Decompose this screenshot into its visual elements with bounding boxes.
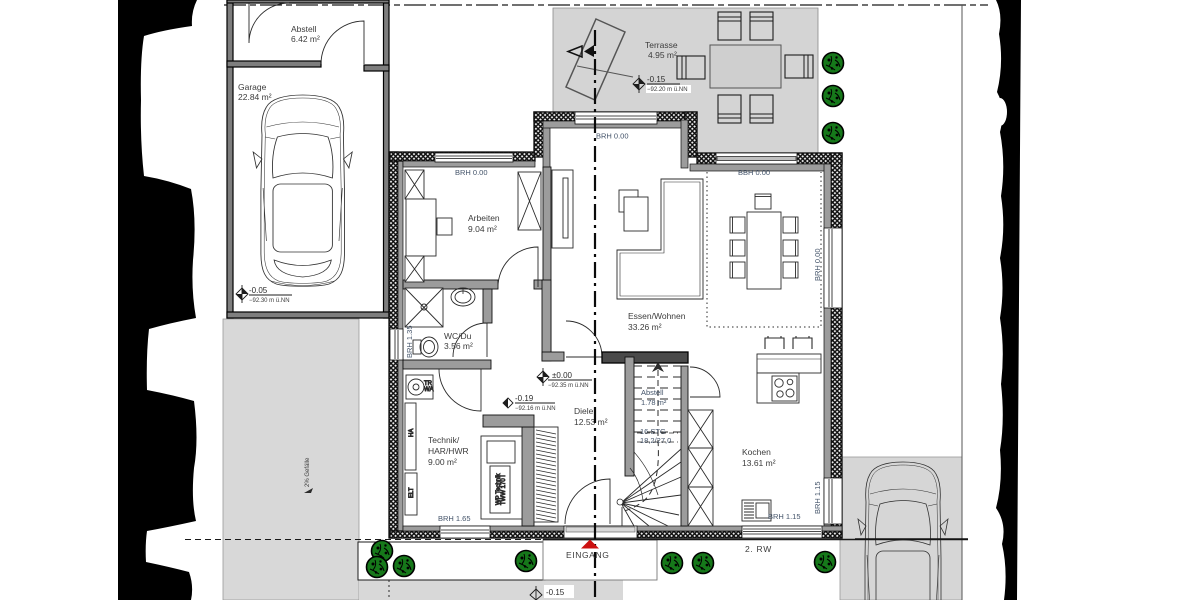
svg-text:−92.35 m ü.NN: −92.35 m ü.NN	[548, 383, 589, 389]
svg-text:HAR/HWR: HAR/HWR	[428, 446, 469, 456]
svg-text:2. RW: 2. RW	[745, 544, 772, 554]
svg-text:ELT: ELT	[409, 487, 415, 498]
svg-text:EINGANG: EINGANG	[566, 550, 609, 560]
svg-text:-0.15: -0.15	[546, 588, 565, 597]
svg-text:−92.20 m ü.NN: −92.20 m ü.NN	[647, 87, 688, 93]
svg-text:Garage: Garage	[238, 82, 267, 92]
svg-text:6.42 m²: 6.42 m²	[291, 34, 320, 44]
svg-text:BRH 0.00: BRH 0.00	[813, 248, 822, 281]
svg-text:Technik/: Technik/	[428, 435, 460, 445]
svg-text:4.95 m²: 4.95 m²	[648, 50, 677, 60]
svg-text:-0.05: -0.05	[249, 286, 268, 295]
svg-text:Arbeiten: Arbeiten	[468, 213, 500, 223]
svg-text:Abstell: Abstell	[641, 388, 664, 397]
svg-text:−92.16 m ü.NN: −92.16 m ü.NN	[515, 406, 556, 412]
svg-text:-0.19: -0.19	[515, 394, 534, 403]
svg-text:22.84 m²: 22.84 m²	[238, 92, 272, 102]
svg-text:3.56 m²: 3.56 m²	[444, 341, 473, 351]
svg-text:BRH 1.15: BRH 1.15	[813, 481, 822, 514]
svg-text:Terrasse: Terrasse	[645, 40, 678, 50]
svg-text:BRH 1.15: BRH 1.15	[768, 512, 801, 521]
svg-text:TWW 170 l: TWW 170 l	[501, 475, 507, 505]
svg-text:33.26 m²: 33.26 m²	[628, 322, 662, 332]
svg-text:BRH 0.00: BRH 0.00	[596, 132, 629, 141]
svg-text:BBH 0.00: BBH 0.00	[738, 168, 770, 177]
svg-text:Essen/Wohnen: Essen/Wohnen	[628, 311, 686, 321]
svg-text:9.00 m²: 9.00 m²	[428, 457, 457, 467]
svg-text:WC/Du: WC/Du	[444, 331, 472, 341]
svg-text:BRH 1.35: BRH 1.35	[405, 325, 414, 358]
svg-text:18,2/27,0: 18,2/27,0	[640, 436, 671, 445]
svg-text:WA: WA	[424, 387, 433, 393]
svg-text:12.53 m²: 12.53 m²	[574, 417, 608, 427]
svg-text:16 STG: 16 STG	[640, 427, 666, 436]
svg-text:Diele: Diele	[574, 406, 594, 416]
svg-text:±0.00: ±0.00	[552, 371, 573, 380]
svg-text:Kochen: Kochen	[742, 447, 771, 457]
svg-text:Abstell: Abstell	[291, 24, 317, 34]
svg-text:−92.30 m ü.NN: −92.30 m ü.NN	[249, 298, 290, 304]
svg-text:13.61 m²: 13.61 m²	[742, 458, 776, 468]
svg-text:1.78 m²: 1.78 m²	[641, 398, 667, 407]
svg-text:-0.15: -0.15	[647, 75, 666, 84]
svg-text:2% Gefälle: 2% Gefälle	[305, 457, 311, 487]
svg-text:BRH 1.65: BRH 1.65	[438, 514, 471, 523]
svg-text:BRH 0.00: BRH 0.00	[455, 168, 488, 177]
svg-text:HA: HA	[409, 429, 415, 437]
svg-text:9.04 m²: 9.04 m²	[468, 224, 497, 234]
